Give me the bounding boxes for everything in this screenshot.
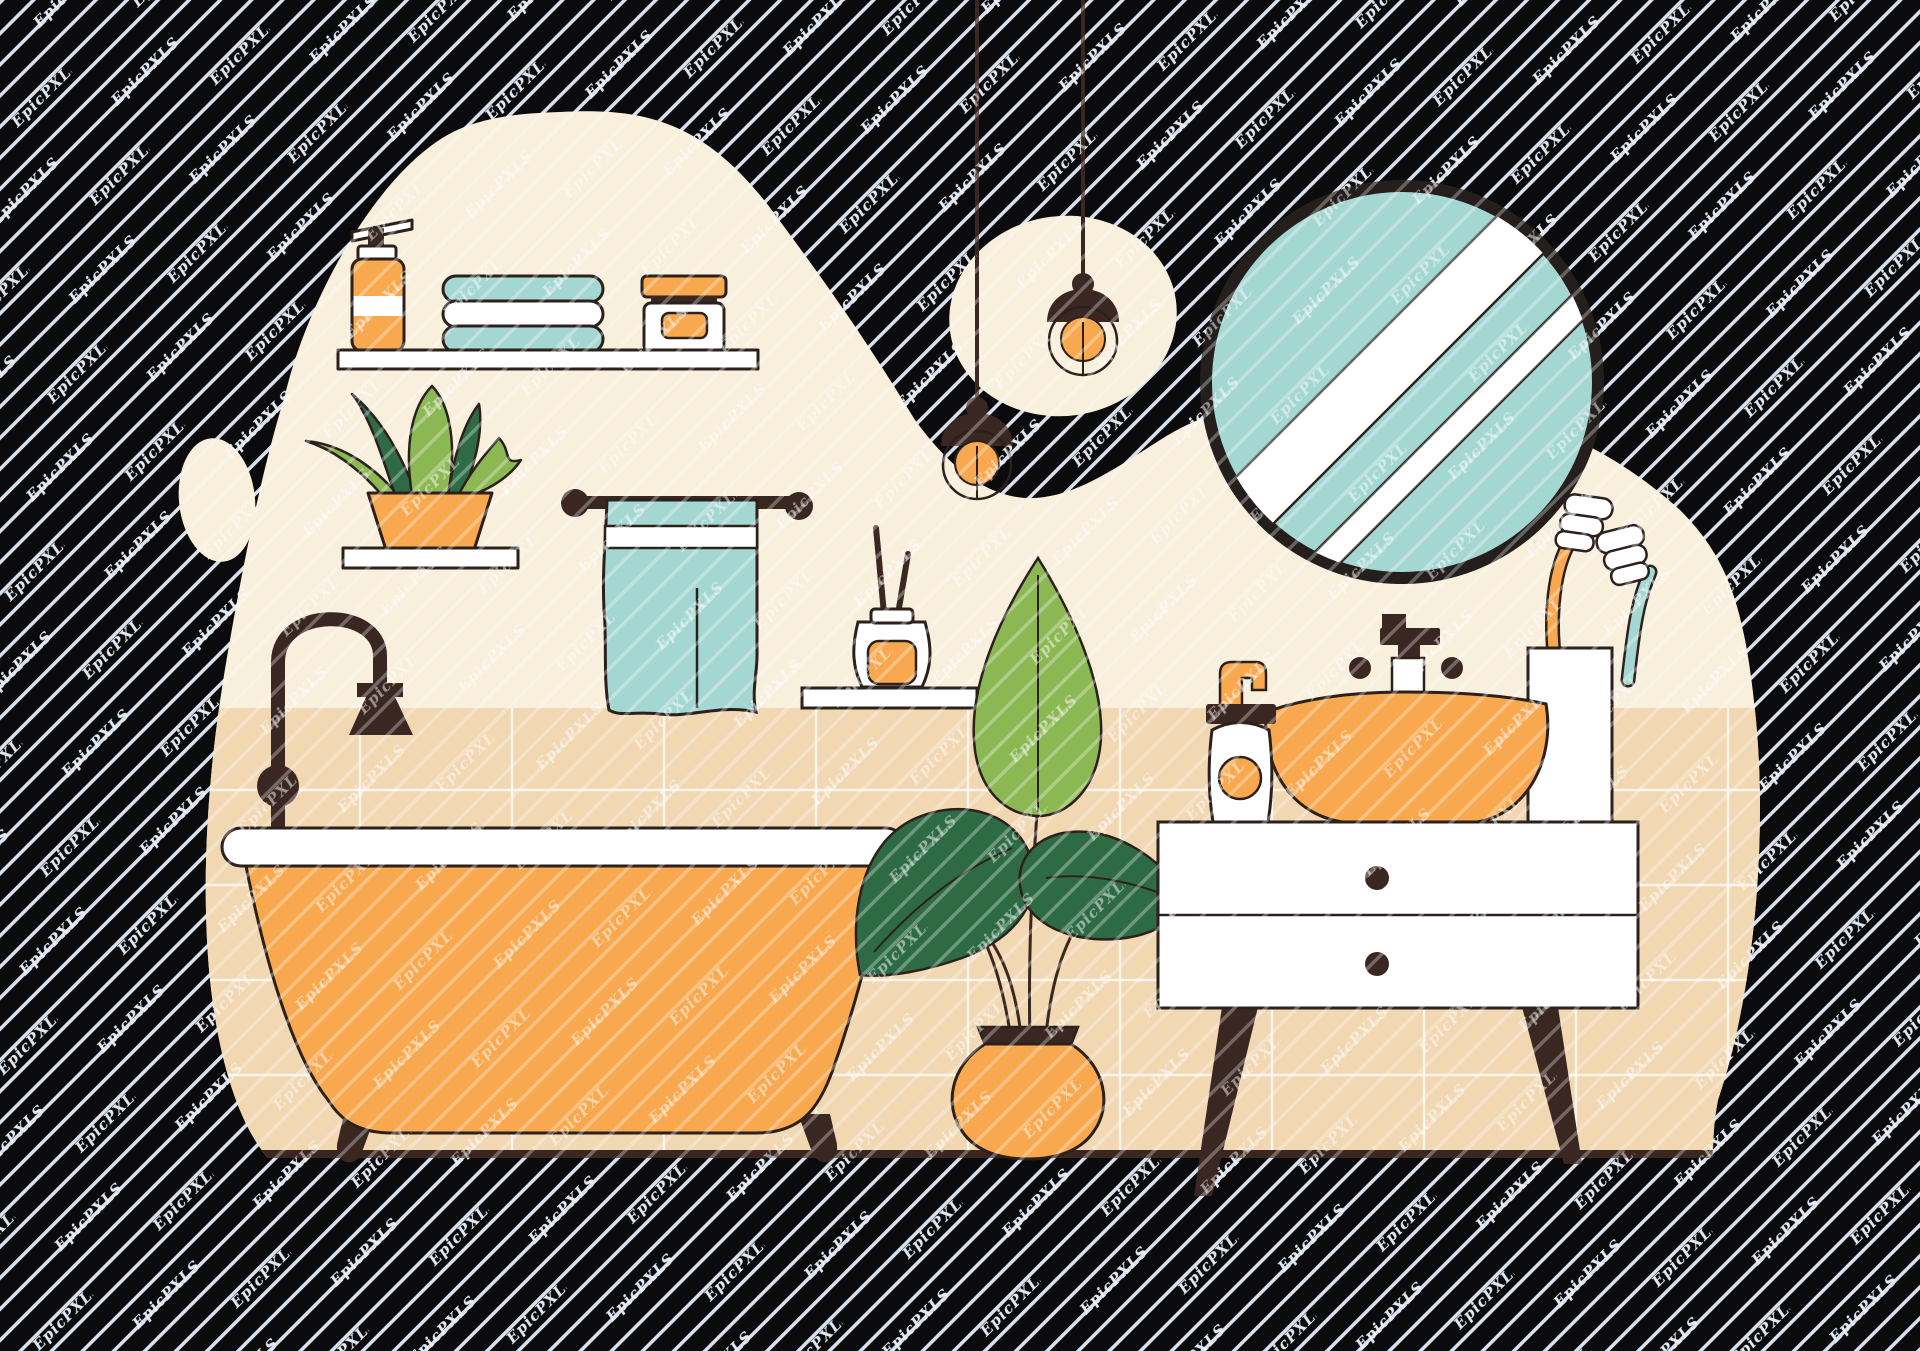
illustration-canvas: EpicPXLS EpicPXLS EpicPXLS EpicPXLS	[0, 0, 1920, 1351]
watermark-overlay	[0, 0, 1920, 1351]
bathroom-illustration: EpicPXLS EpicPXLS EpicPXLS EpicPXLS	[0, 0, 1920, 1351]
